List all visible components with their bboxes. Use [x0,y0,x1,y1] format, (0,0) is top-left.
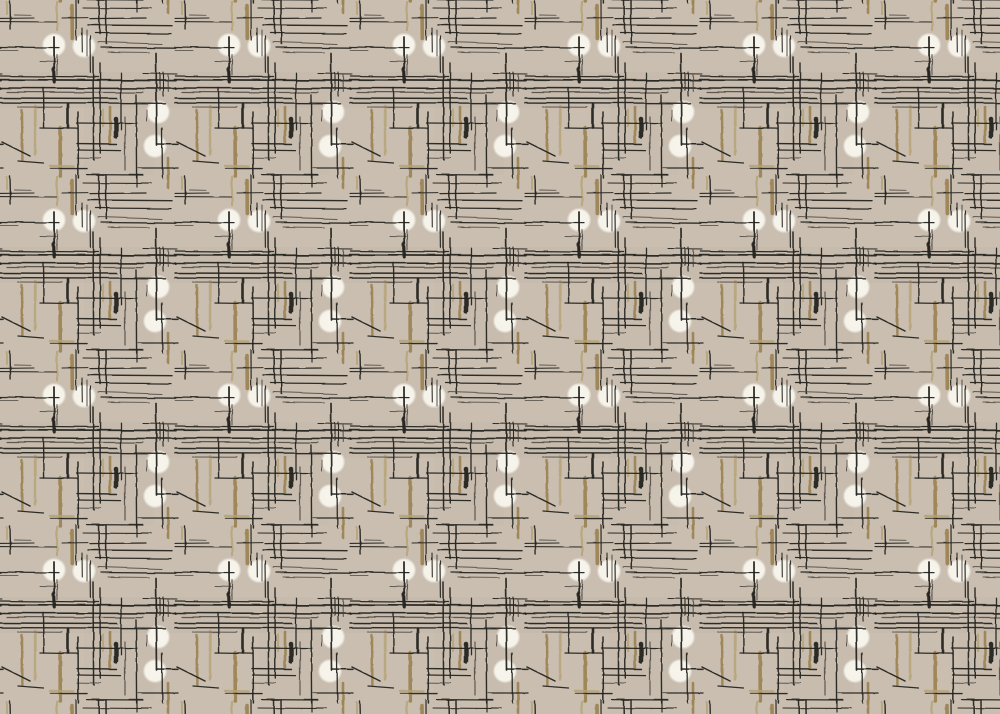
pattern-canvas [0,0,1000,714]
textile-pattern-image [0,0,1000,714]
pattern-fill [0,0,1000,714]
